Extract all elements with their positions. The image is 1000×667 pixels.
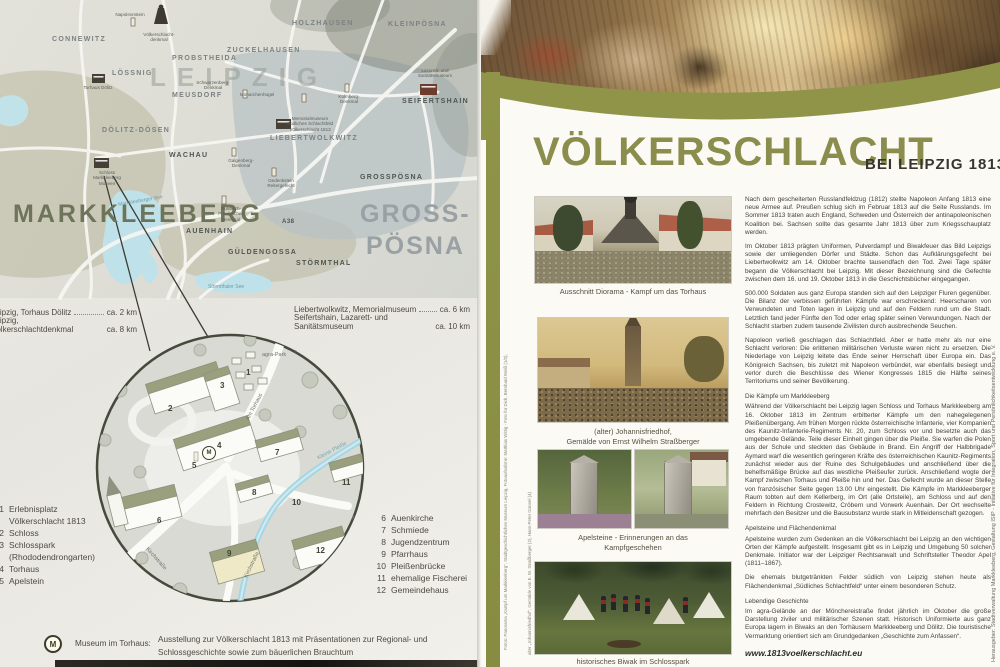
apelstein-stone: [665, 462, 691, 518]
map-town: SEIFERTSHAIN: [402, 98, 469, 105]
legend-num: 2: [0, 527, 4, 539]
legend-num: 4: [0, 563, 4, 575]
caption-line: Kampfgeschehen: [535, 543, 731, 553]
diorama-soldiers: [535, 251, 731, 283]
map-town: STÖRMTHAL: [296, 260, 352, 267]
photo-caption: historisches Biwak im Schlosspark: [535, 657, 731, 667]
legend-item: 8Jugendzentrum: [376, 536, 480, 548]
biwak-tent: [693, 592, 725, 618]
legend-item: 4Torhaus: [0, 563, 104, 575]
section-heading: Die Kämpfe um Markkleeberg: [745, 393, 991, 401]
legend-label: Schlosspark: [9, 539, 55, 551]
map-panel: LEIPZIG MARKKLEEBERG GROSS- PÖSNA CONNEW…: [0, 0, 480, 667]
distance-row: Liebertwolkwitz, Memorialmuseum ca. 6 km: [294, 297, 470, 314]
photo-caption: Apelsteine - Erinnerungen an das Kampfge…: [535, 533, 731, 552]
map-poi-label: Russisch- Preußisches Denkmal: [212, 206, 250, 222]
legend-num: 6: [376, 512, 386, 524]
photo-apelstein-2: [635, 450, 728, 528]
legend-item: 3Schlosspark: [0, 539, 104, 551]
legend-item: 2Schloss: [0, 527, 104, 539]
legend-label: ehemalige Fischerei: [391, 572, 467, 584]
article-text: Nach dem gescheiterten Russlandfeldzug (…: [745, 196, 991, 657]
legend-label: Erlebnisplatz: [9, 503, 58, 515]
biwak-figure: [601, 596, 606, 612]
inset-number: 6: [157, 516, 161, 525]
caption-line: (alter) Johannisfriedhof,: [535, 427, 731, 437]
map-town: HOLZHAUSEN: [292, 20, 354, 27]
apelstein-ground: [538, 514, 631, 528]
biwak-figure: [645, 598, 650, 614]
north-arrow-icon: ↑: [294, 349, 298, 356]
map-town: LIEBERTWOLKWITZ: [270, 135, 358, 142]
dot-leader: [419, 311, 437, 312]
map-town: PROBSTHEIDA: [172, 55, 237, 62]
legend-label: Schloss: [9, 527, 39, 539]
biwak-figure: [611, 594, 616, 610]
legend-item: 11ehemalige Fischerei: [376, 572, 480, 584]
info-panel: VÖLKERSCHLACHT BEI LEIPZIG 1813 Ausschni…: [481, 0, 1000, 667]
map-highway-label: A38: [282, 219, 295, 225]
map-poi-label: Gedenkstein Reitergefecht: [262, 178, 300, 189]
photo-apelstein-1: [538, 450, 631, 528]
distance-row: Seifertshain, Lazarett- und Sanitätsmuse…: [294, 314, 470, 331]
paragraph: Nach dem gescheiterten Russlandfeldzug (…: [745, 196, 991, 237]
inset-number: 4: [217, 441, 221, 450]
apelstein-ground: [635, 514, 728, 528]
map-town: KLEINPÖSNA: [388, 21, 447, 28]
inset-number: 9: [227, 549, 231, 558]
painting-tree: [684, 336, 724, 382]
green-frame-band: [481, 56, 1000, 140]
paragraph: Im agra-Gelände an der Mönchereistraße f…: [745, 608, 991, 641]
legend-label: Apelstein: [9, 575, 44, 587]
museum-icon: M: [44, 635, 62, 653]
legend-label: Gemeindehaus: [391, 584, 449, 596]
legend-right: 6Auenkirche 7Schmiede 8Jugendzentrum 9Pf…: [376, 512, 480, 596]
diorama-tree: [677, 201, 703, 249]
legend-num: 12: [376, 584, 386, 596]
map-poi-label: Monarchenhügel: [240, 92, 274, 97]
biwak-figure: [635, 595, 640, 611]
legend-num: 10: [376, 560, 386, 572]
page-subtitle: BEI LEIPZIG 1813: [865, 156, 1000, 173]
biwak-figure: [623, 596, 628, 612]
map-poi-label: Memorialmuseum Südliches Schlachtfeld Vö…: [286, 116, 334, 132]
apelstein-stone: [571, 462, 597, 518]
legend-item: 7Schmiede: [376, 524, 480, 536]
map-town: AUENHAIN: [186, 228, 233, 235]
paragraph: Im Oktober 1813 prägten Uniformen, Pulve…: [745, 243, 991, 284]
legend-num: 3: [0, 539, 4, 551]
paragraph: 500.000 Soldaten aus ganz Europa standen…: [745, 290, 991, 331]
paragraph: Apelsteine wurden zum Gedenken an die Vö…: [745, 536, 991, 569]
website-url: www.1813voelkerschlacht.eu: [745, 649, 991, 657]
paragraph: Während der Völkerschlacht bei Leipzig l…: [745, 403, 991, 518]
photo-biwak: [535, 562, 731, 654]
distance-value: ca. 6 km: [440, 305, 470, 314]
legend-item: 1Erlebnisplatz: [0, 503, 104, 515]
distance-label: Seifertshain, Lazarett- und Sanitätsmuse…: [294, 313, 429, 331]
map-poi-label: Schloss Markkleeberg Museen: [86, 170, 128, 186]
photo-caption: Ausschnitt Diorama - Kampf um das Torhau…: [535, 287, 731, 297]
caption-line: Apelsteine - Erinnerungen an das: [535, 533, 731, 543]
legend-item: 5Apelstein: [0, 575, 104, 587]
panel-bottom-edge: [55, 660, 480, 667]
map-poi-label: Napoleonstein: [112, 12, 148, 17]
biwak-trees: [535, 562, 731, 588]
photographed-info-sign: LEIPZIG MARKKLEEBERG GROSS- PÖSNA CONNEW…: [0, 0, 1000, 667]
inset-number: 7: [275, 448, 279, 457]
inset-number: 10: [292, 498, 301, 507]
legend-item: 6Auenkirche: [376, 512, 480, 524]
museum-note-line1: Ausstellung zur Völkerschlacht 1813 mit …: [158, 633, 458, 646]
inset-number: 1: [246, 368, 250, 377]
legend-label: Jugendzentrum: [391, 536, 450, 548]
legend-item: 10Pleißenbrücke: [376, 560, 480, 572]
map-town: DÖLITZ-DÖSEN: [102, 127, 170, 134]
inset-number: 11: [342, 478, 350, 487]
map-poi-label: Schwarzenberg- Denkmal: [194, 80, 232, 91]
photo-credit: Fotos: Panorama „Kampf um Markkleeberg“,…: [503, 230, 508, 650]
legend-item: 9Pfarrhaus: [376, 548, 480, 560]
dot-leader: [74, 314, 103, 315]
photo-caption: (alter) Johannisfriedhof, Gemälde von Er…: [535, 427, 731, 446]
paragraph: Napoleon verließ geschlagen das Schlacht…: [745, 337, 991, 386]
biwak-figure: [683, 597, 688, 613]
publisher-credit: Herausgeber: Stadtverwaltung Markkleeber…: [991, 290, 997, 662]
distance-list-left: Leipzig, Torhaus Dölitz ca. 2 km Leipzig…: [0, 300, 137, 334]
painting-tower: [625, 326, 641, 386]
biwak-tent: [563, 594, 595, 620]
map-label-gross: GROSS-: [360, 200, 471, 229]
legend-label-line2: (Rhododendrongarten): [9, 551, 104, 563]
legend-num: 8: [376, 536, 386, 548]
museum-note-title: Museum im Torhaus:: [75, 639, 151, 648]
map-poi-label: Torhaus Dölitz: [82, 85, 114, 90]
distance-row: Leipzig, Torhaus Dölitz ca. 2 km: [0, 300, 137, 317]
legend-num: 1: [0, 503, 4, 515]
distance-value: ca. 8 km: [107, 325, 137, 334]
inset-street-label: agra-Park: [262, 352, 286, 358]
photo-painting-johannisfriedhof: [538, 318, 728, 422]
apelstein-house: [692, 460, 726, 486]
paragraph: Die ehemals blutgetränkten Felder südlic…: [745, 574, 991, 590]
legend-num: 5: [0, 575, 4, 587]
section-heading: Lebendige Geschichte: [745, 598, 991, 606]
map-poi-label: Galgenberg- Denkmal: [224, 158, 258, 169]
green-frame-left: [486, 72, 500, 667]
museum-note-text: Ausstellung zur Völkerschlacht 1813 mit …: [158, 633, 458, 659]
museum-marker-icon: M: [202, 446, 216, 460]
inset-number: 3: [220, 381, 224, 390]
map-label-leipzig: LEIPZIG: [150, 62, 328, 93]
legend-label: Torhaus: [9, 563, 39, 575]
map-town: ZUCKELHAUSEN: [227, 47, 301, 54]
distance-label: Leipzig, Völkerschlachtdenkmal: [0, 316, 101, 334]
map-town: GROSSPÖSNA: [360, 174, 423, 181]
map-town: MEUSDORF: [172, 92, 222, 99]
map-label-poesna: PÖSNA: [366, 232, 465, 261]
painting-crowd: [538, 388, 728, 422]
biwak-campfire: [607, 640, 641, 648]
legend-left: 1Erlebnisplatz Völkerschlacht 1813 2Schl…: [0, 503, 104, 587]
map-town: LÖSSNIG: [112, 70, 153, 77]
legend-item: 12Gemeindehaus: [376, 584, 480, 596]
photo-credit: alter „Johannisfriedhof“, Gemälde von E.…: [527, 380, 532, 655]
legend-label: Schmiede: [391, 524, 429, 536]
lake-label: Störmthaler See: [208, 284, 244, 290]
section-heading: Apelsteine und Flächendenkmal: [745, 525, 991, 533]
map-town: GÜLDENGOSSA: [228, 249, 297, 256]
map-poi-label: Lazarett- und Sanitätsmuseum: [412, 68, 458, 79]
inset-number: 12: [316, 546, 325, 555]
legend-num: 7: [376, 524, 386, 536]
distance-row: Leipzig, Völkerschlachtdenkmal ca. 8 km: [0, 317, 137, 334]
caption-line: Gemälde von Ernst Wilhelm Straßberger: [535, 437, 731, 447]
inset-number: 5: [192, 461, 196, 470]
inset-number: 2: [168, 404, 172, 413]
legend-num: 9: [376, 548, 386, 560]
legend-num: 11: [376, 572, 386, 584]
map-poi-label: Völkerschlacht- denkmal: [138, 32, 180, 43]
map-town: WACHAU: [169, 152, 208, 159]
painting-roof: [538, 358, 590, 367]
inset-number: 8: [252, 488, 256, 497]
map-town: CONNEWITZ: [52, 36, 106, 43]
distance-value: ca. 10 km: [435, 322, 470, 331]
diorama-tree: [553, 205, 583, 251]
biwak-tent: [653, 598, 685, 624]
photo-diorama: [535, 197, 731, 283]
legend-label: Auenkirche: [391, 512, 434, 524]
legend-label: Pleißenbrücke: [391, 560, 445, 572]
legend-label-line2: Völkerschlacht 1813: [9, 515, 104, 527]
legend-label: Pfarrhaus: [391, 548, 428, 560]
map-poi-label: Kolmberg- Denkmal: [332, 94, 366, 105]
museum-note-line2: Schlossgeschichte sowie zum bäuerlichen …: [158, 646, 458, 659]
distance-value: ca. 2 km: [107, 308, 137, 317]
distance-list-right: Liebertwolkwitz, Memorialmuseum ca. 6 km…: [294, 297, 470, 331]
glare-highlight: [481, 0, 511, 55]
